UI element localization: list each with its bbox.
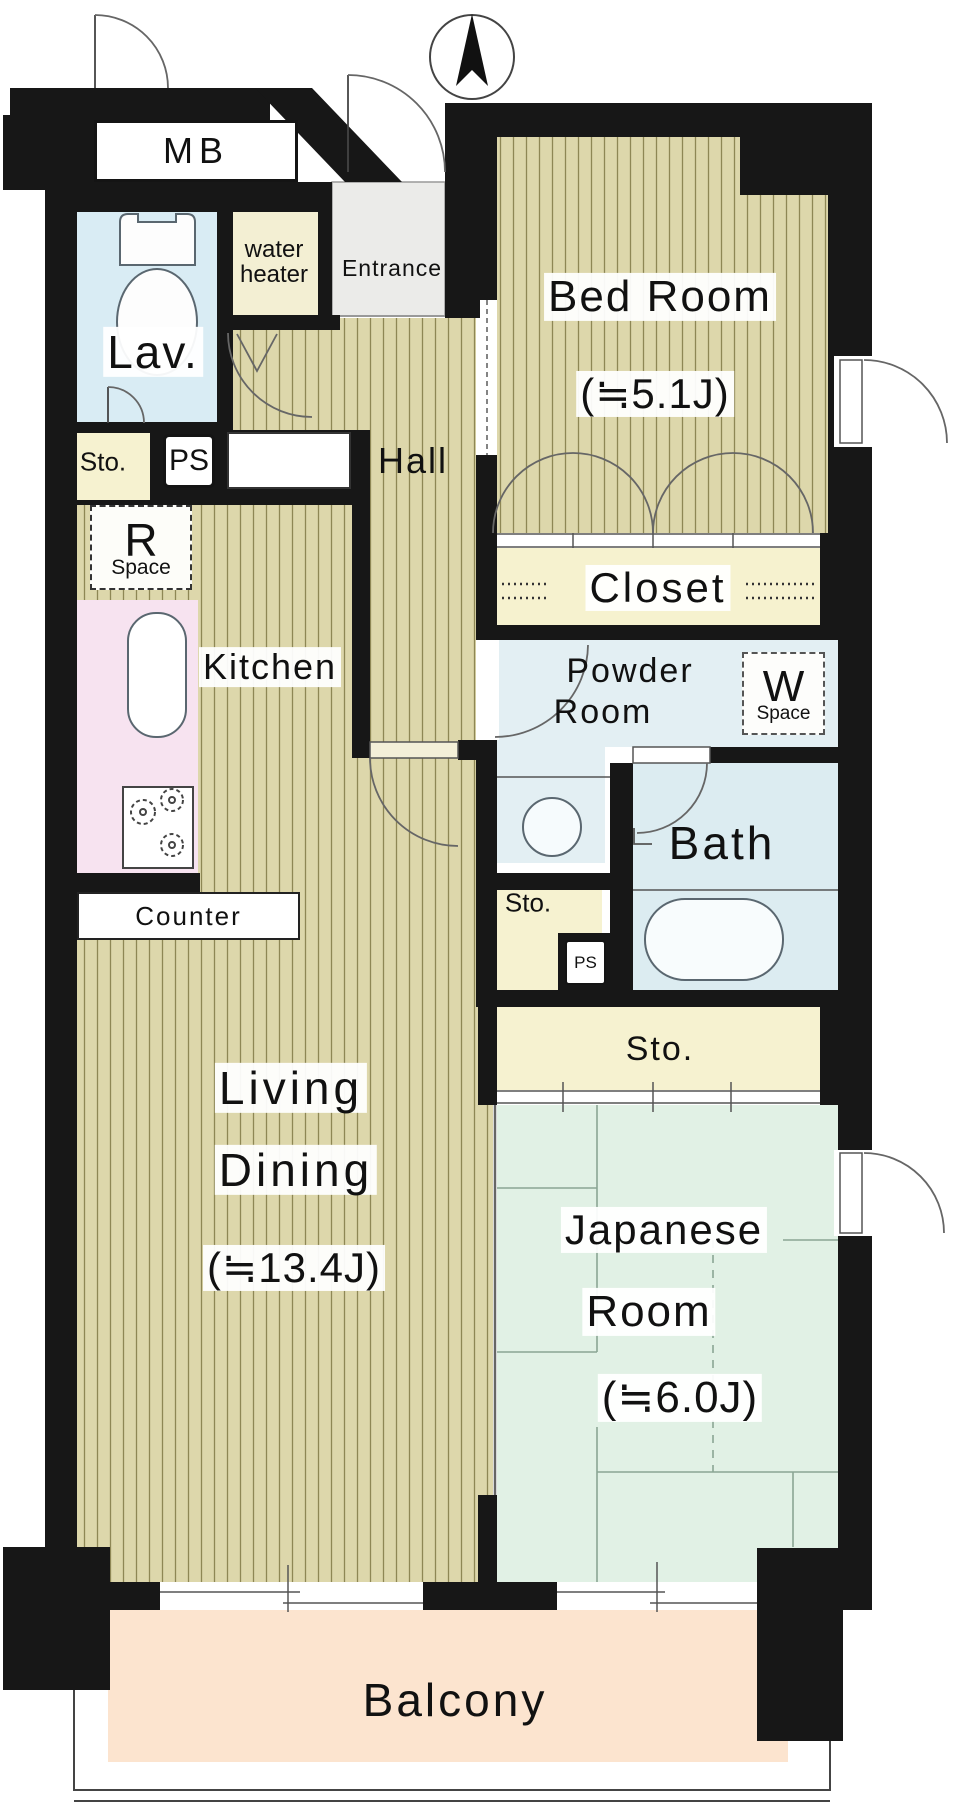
bedroom-floor — [497, 137, 740, 195]
entrance-floor — [332, 182, 445, 316]
storage-strip-label: Sto. — [622, 1031, 698, 1069]
hall-storage-cabinet — [228, 433, 350, 488]
wash-basin-icon — [523, 798, 581, 856]
storage-mid-label: Sto. — [501, 888, 555, 917]
hall-floor — [230, 330, 332, 433]
lavatory-label: Lav. — [103, 327, 203, 377]
closet-label: Closet — [585, 565, 730, 611]
japanese-room-label: Room — [582, 1288, 715, 1336]
refrigerator-space: R Space — [90, 505, 192, 590]
bedroom-area-label: (≒5.1J) — [576, 371, 734, 417]
hall-corridor-floor — [370, 433, 476, 758]
pipe-shaft-label: PS — [574, 954, 597, 971]
pipe-shaft-mid: PS — [565, 940, 606, 985]
refrigerator-space-word: Space — [111, 557, 171, 578]
japanese-room-label: Japanese — [561, 1207, 767, 1253]
meter-box: MB — [94, 120, 298, 182]
meter-box-label: MB — [163, 133, 229, 169]
living-dining-label: Living — [215, 1063, 367, 1113]
powder-room-label: Room — [550, 694, 657, 732]
bedroom-label: Bed Room — [544, 273, 776, 321]
washer-space-word: Space — [757, 704, 811, 723]
kitchen-sink-icon — [128, 613, 186, 737]
balcony-label: Balcony — [359, 1675, 552, 1725]
pipe-shaft-top: PS — [163, 434, 215, 488]
living-dining-area-label: (≒13.4J) — [203, 1245, 385, 1291]
water-heater-label: water heater — [236, 236, 312, 288]
washer-space-letter: W — [763, 665, 805, 709]
bathtub-icon — [645, 899, 783, 980]
mb-door — [95, 15, 168, 88]
bedroom-floor — [497, 195, 828, 533]
washer-space: W Space — [742, 652, 825, 735]
bedroom-balcony-door — [840, 360, 947, 443]
hall-floor — [332, 318, 476, 433]
powder-room-label: Powder — [562, 653, 697, 691]
pipe-shaft-label: PS — [169, 446, 209, 476]
counter-label-box: Counter — [77, 892, 300, 940]
storage-top-label: Sto. — [76, 447, 130, 476]
stove-icon — [123, 787, 193, 868]
japanese-room-area-label: (≒6.0J) — [598, 1374, 762, 1422]
powder-door-opening — [476, 640, 499, 740]
closet-door-track — [497, 533, 820, 548]
living-dining-label: Dining — [215, 1145, 377, 1195]
north-arrow-icon — [430, 14, 514, 99]
living-window — [160, 1582, 423, 1610]
japanese-room-door — [840, 1153, 944, 1233]
counter-label: Counter — [135, 903, 242, 929]
japanese-room-floor — [497, 1105, 838, 1582]
hall-label: Hall — [374, 441, 452, 481]
entrance-label: Entrance — [338, 255, 446, 281]
kitchen-label: Kitchen — [199, 647, 341, 687]
floor-plan: MB PS R Space W Space PS Counter Lav. wa… — [0, 0, 960, 1808]
bath-label: Bath — [665, 818, 780, 868]
